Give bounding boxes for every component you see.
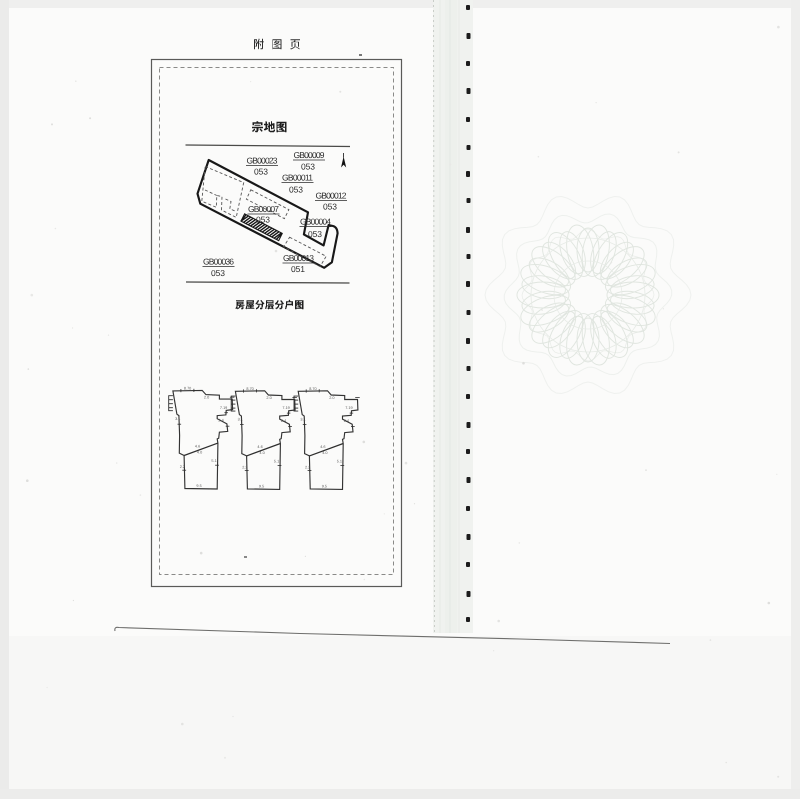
svg-text:GB00023: GB00023 [247, 156, 278, 166]
svg-text:4.6: 4.6 [320, 445, 325, 449]
svg-text:4.6: 4.6 [257, 445, 262, 449]
svg-text:2.0: 2.0 [266, 396, 271, 400]
svg-text:053: 053 [254, 167, 268, 177]
svg-text:5.1: 5.1 [337, 460, 342, 464]
svg-text:8.70: 8.70 [246, 387, 253, 391]
svg-text:5.1: 5.1 [211, 459, 216, 463]
svg-text:2.0: 2.0 [204, 396, 209, 400]
svg-text:GB00009: GB00009 [294, 150, 325, 160]
svg-text:GB00013: GB00013 [283, 253, 314, 263]
svg-text:2.4: 2.4 [218, 419, 223, 423]
svg-text:GB00036: GB00036 [203, 257, 234, 267]
svg-text:4.0: 4.0 [322, 451, 327, 455]
svg-text:2.2: 2.2 [242, 466, 247, 470]
svg-text:053: 053 [323, 202, 337, 212]
svg-text:7.19: 7.19 [282, 406, 289, 410]
svg-text:053: 053 [256, 215, 270, 225]
svg-text:GB00011: GB00011 [282, 173, 313, 183]
svg-text:GB00007: GB00007 [248, 204, 279, 214]
svg-text:7.19: 7.19 [220, 406, 227, 410]
svg-text:9.5: 9.5 [322, 485, 327, 489]
svg-text:053: 053 [289, 185, 303, 195]
svg-text:4.6: 4.6 [195, 445, 200, 449]
svg-text:2.4: 2.4 [344, 419, 349, 423]
svg-text:9.5: 9.5 [196, 484, 201, 488]
svg-text:053: 053 [308, 229, 322, 239]
svg-text:051: 051 [291, 264, 305, 274]
svg-text:2.4: 2.4 [281, 419, 286, 423]
svg-text:2.0: 2.0 [329, 396, 334, 400]
svg-text:8.70: 8.70 [309, 387, 316, 391]
svg-text:3.1: 3.1 [238, 418, 243, 422]
svg-text:053: 053 [301, 162, 315, 172]
svg-text:3.1: 3.1 [175, 417, 180, 421]
svg-text:4.0: 4.0 [197, 451, 202, 455]
svg-text:8.70: 8.70 [184, 386, 191, 390]
svg-text:2.2: 2.2 [305, 466, 310, 470]
svg-text:9.5: 9.5 [259, 485, 264, 489]
svg-text:5.1: 5.1 [274, 460, 279, 464]
svg-text:4.0: 4.0 [259, 451, 264, 455]
svg-text:GB00012: GB00012 [316, 191, 347, 201]
svg-text:2.2: 2.2 [180, 465, 185, 469]
svg-text:053: 053 [211, 268, 225, 278]
svg-text:7.19: 7.19 [345, 406, 352, 410]
svg-text:3.1: 3.1 [300, 418, 305, 422]
svg-text:GB00004: GB00004 [300, 217, 331, 227]
